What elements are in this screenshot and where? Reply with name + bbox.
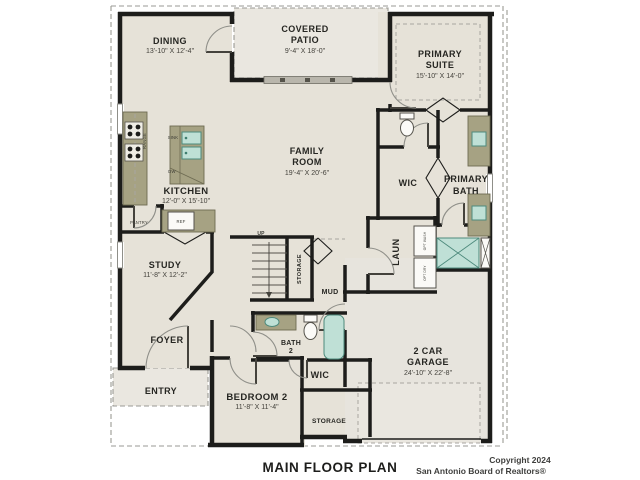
opt-dryer-label: OPT DRY [423, 265, 427, 281]
bath2-label-2: 2 [289, 348, 293, 355]
floor-plan: DINING 13'-10" X 12'-4" COVERED PATIO 9'… [0, 0, 640, 480]
primary-bath-label-1: PRIMARY [444, 174, 488, 184]
primary-wic-label: WIC [399, 178, 418, 188]
primary-suite-dims: 15'-10" X 14'-0" [416, 73, 465, 80]
ref-label: REF [177, 219, 186, 224]
family-room-dims: 19'-4" X 20'-6" [285, 170, 330, 177]
bedroom2-dims: 11'-8" X 11'-4" [235, 404, 279, 411]
toilet-icon [304, 315, 317, 340]
primary-suite-label-1: PRIMARY [418, 49, 462, 59]
foyer-label: FOYER [150, 335, 183, 345]
garage-apron [358, 383, 480, 443]
bedroom2-wic-label: WIC [311, 370, 330, 380]
dining-label: DINING [153, 36, 187, 46]
bedroom2-label: BEDROOM 2 [226, 392, 287, 403]
copyright-line1: Copyright 2024 [489, 455, 551, 465]
sink-icon [472, 206, 486, 220]
mud-label: MUD [322, 289, 339, 296]
shower-icon [437, 238, 479, 268]
plan-title: MAIN FLOOR PLAN [263, 460, 398, 475]
kitchen-dims: 12'-0" X 15'-10" [162, 198, 211, 205]
dw-label: DW [168, 169, 175, 174]
kitchen-label: KITCHEN [163, 186, 208, 197]
range-label: RANGE [142, 133, 147, 149]
linen-icon [481, 238, 490, 268]
bath2-label-1: BATH [281, 340, 301, 347]
footer: MAIN FLOOR PLAN Copyright 2024 San Anton… [263, 455, 551, 476]
sink-icon [472, 132, 486, 146]
patio-dims: 9'-4" X 18'-0" [285, 48, 326, 55]
sink-icon [265, 318, 279, 327]
bathtub-icon [324, 315, 344, 359]
stair-storage-label: STORAGE [297, 254, 303, 284]
patio-label-1: COVERED [281, 24, 328, 34]
study-label: STUDY [149, 260, 182, 270]
primary-bath-label-2: BATH [453, 186, 479, 196]
entry-label: ENTRY [145, 386, 177, 396]
copyright-line2: San Antonio Board of Realtors® [416, 466, 546, 476]
stairs-up-label: UP [257, 231, 265, 237]
patio-label-2: PATIO [291, 35, 319, 45]
laundry-label: LAUN [391, 238, 401, 265]
garage-storage-label: STORAGE [312, 418, 346, 425]
study-dims: 11'-8" X 12'-2" [143, 272, 187, 279]
garage-label-2: GARAGE [407, 357, 449, 367]
toilet-icon [400, 113, 414, 136]
primary-suite-label-2: SUITE [426, 60, 455, 70]
family-room-label-2: ROOM [292, 157, 322, 167]
family-room-label-1: FAMILY [290, 146, 325, 156]
dining-dims: 13'-10" X 12'-4" [146, 48, 195, 55]
sliding-door-icon [264, 77, 352, 84]
sink-label: SINK [168, 135, 179, 140]
garage-dims: 24'-10" X 22'-8" [404, 370, 453, 377]
opt-washer-label: OPT WASH [423, 231, 427, 250]
garage-label-1: 2 CAR [413, 346, 442, 356]
pantry-label: PANTRY [130, 220, 148, 225]
